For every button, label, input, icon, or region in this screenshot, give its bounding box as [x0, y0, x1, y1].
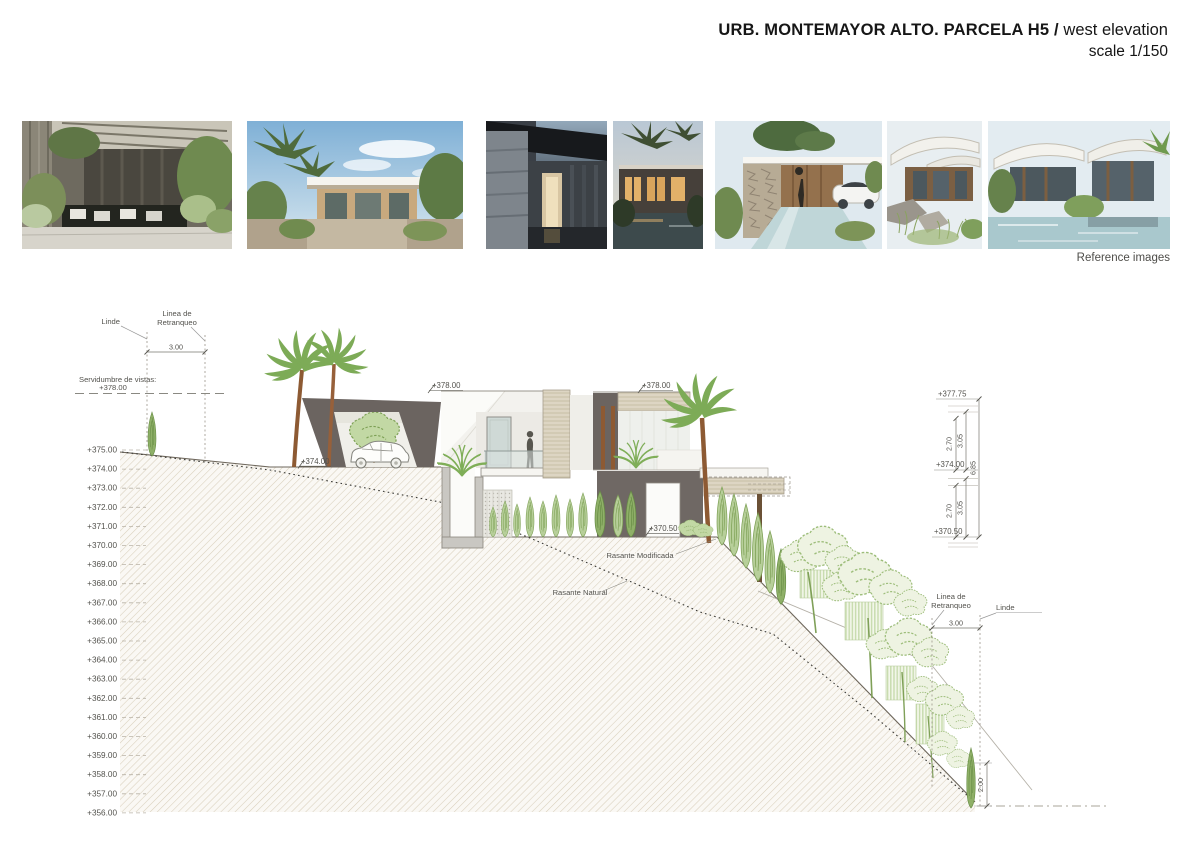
dim-level-lower: +370.50 — [934, 527, 963, 536]
balcony-slab — [481, 468, 552, 476]
retranqueo-right-label-1: Linea de — [936, 592, 965, 601]
spot-roof-right: +378.00 — [642, 381, 671, 390]
retranqueo-right-label-2: Retranqueo — [931, 601, 971, 610]
dim-hedge-height: 2.00 — [976, 778, 985, 792]
spot-carport-floor: +374.00 — [301, 457, 330, 466]
dim-clear-lower: 2.70 — [945, 504, 954, 518]
dim-level-main: +374.00 — [936, 460, 965, 469]
elevation-drawing: +375.00 +374.00 +373.00 +372.00 +371.00 … — [0, 0, 1200, 848]
rasante-natural-label: Rasante Natural — [553, 588, 608, 597]
level-label: +373.00 — [87, 484, 117, 493]
level-label: +372.00 — [87, 503, 117, 512]
level-label: +368.00 — [87, 579, 117, 588]
timber-post-1 — [601, 406, 605, 470]
dim-floor-lower: 3.05 — [956, 501, 965, 515]
level-label: +374.00 — [87, 465, 117, 474]
dim-floor-upper: 3.05 — [956, 434, 965, 448]
level-label: +366.00 — [87, 617, 117, 626]
level-label: +371.00 — [87, 522, 117, 531]
cypress-left — [148, 412, 156, 456]
level-label: +370.00 — [87, 541, 117, 550]
glass-railing — [484, 451, 551, 468]
level-label: +357.00 — [87, 789, 117, 798]
level-label: +360.00 — [87, 732, 117, 741]
level-label: +362.00 — [87, 694, 117, 703]
level-label: +367.00 — [87, 598, 117, 607]
dim-total: 6.85 — [969, 461, 978, 475]
stone-clad-wall — [543, 390, 570, 478]
level-label: +365.00 — [87, 637, 117, 646]
level-label: +375.00 — [87, 446, 117, 455]
setback-dim-left: 3.00 — [169, 343, 183, 352]
level-label: +356.00 — [87, 808, 117, 817]
linde-left-label: Linde — [101, 317, 120, 326]
dim-level-top: +377.75 — [938, 390, 967, 399]
right-dimension-column: +377.75 +374.00 +370.50 2.70 3.05 2.70 3… — [932, 390, 982, 548]
linde-right-label: Linde — [996, 603, 1015, 612]
retranqueo-left-label-1: Linea de — [162, 309, 191, 318]
level-label: +358.00 — [87, 770, 117, 779]
spot-lower-floor: +370.50 — [649, 524, 678, 533]
dim-clear-upper: 2.70 — [945, 437, 954, 451]
sunken-patio — [442, 467, 512, 548]
level-label: +363.00 — [87, 675, 117, 684]
retranqueo-left-label-2: Retranqueo — [157, 318, 197, 327]
servidumbre-label-2: +378.00 — [99, 383, 127, 392]
timber-post-2 — [611, 406, 615, 470]
setback-dim-right: 3.00 — [949, 619, 963, 628]
level-label: +359.00 — [87, 751, 117, 760]
level-label: +361.00 — [87, 713, 117, 722]
level-label: +369.00 — [87, 560, 117, 569]
rasante-modificada-label: Rasante Modificada — [606, 551, 674, 560]
level-label: +364.00 — [87, 656, 117, 665]
spot-roof-left: +378.00 — [432, 381, 461, 390]
